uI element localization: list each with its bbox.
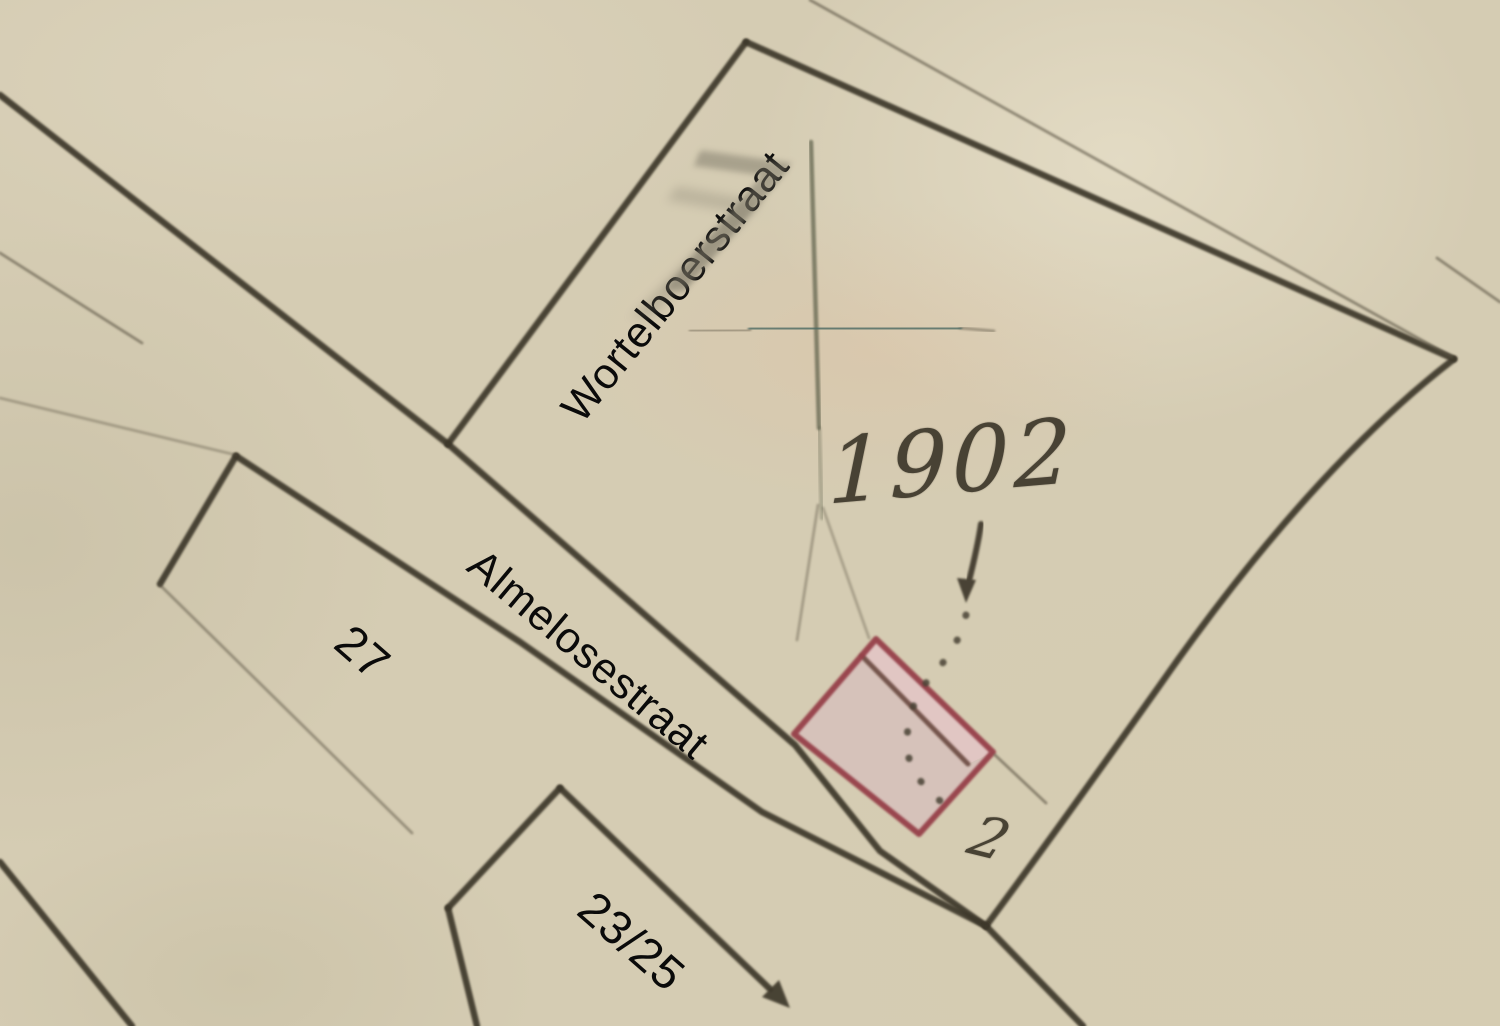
parcel-2325-west-edge-line	[448, 908, 477, 1026]
bottom-left-edge-line	[0, 862, 132, 1026]
survey-fan-line-2	[823, 508, 869, 638]
block-south-corner-line	[986, 926, 1083, 1026]
parcel-27-south-line	[160, 585, 412, 833]
cross-stub-right	[960, 328, 994, 331]
grid-vertical-line	[811, 142, 819, 428]
pointer-arrow-tail	[969, 524, 981, 581]
thin-line-left-edge	[0, 253, 142, 343]
highlighted-parcel	[794, 639, 993, 834]
parcel-2325-northwest-edge-line	[448, 788, 560, 908]
map-canvas[interactable]: Wortelboerstraat Almelosestraat 27 23/25…	[0, 0, 1500, 1026]
block-top-edge-line	[746, 42, 1454, 359]
thin-line-left-shallow	[0, 398, 236, 455]
parcel-extension-line	[995, 755, 1046, 803]
grid-vertical-line-faint	[819, 428, 822, 518]
short-line-right-edge	[1437, 258, 1500, 302]
year-annotation-1902: 1902	[827, 398, 1077, 525]
parcel-27-west-edge-line	[160, 456, 236, 584]
grid-cross-horizontal-line	[750, 328, 960, 329]
survey-fan-line-1	[797, 505, 818, 640]
parallel-line-top-right	[810, 0, 1452, 357]
pointer-arrowhead-icon	[957, 578, 976, 603]
almelosestraat-north-line-west	[0, 95, 448, 444]
